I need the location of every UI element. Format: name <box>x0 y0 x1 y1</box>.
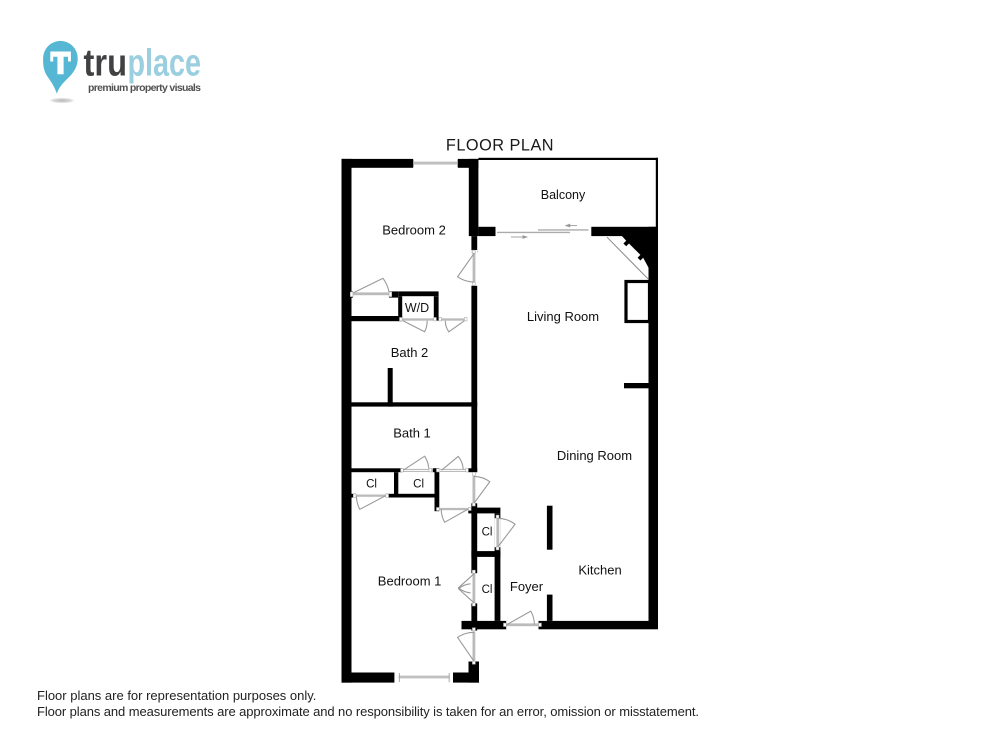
svg-text:Foyer: Foyer <box>510 579 544 594</box>
svg-text:Cl: Cl <box>482 527 493 539</box>
svg-text:Cl: Cl <box>366 478 377 490</box>
svg-text:Bath 1: Bath 1 <box>393 426 431 441</box>
svg-text:W/D: W/D <box>405 301 429 315</box>
svg-text:Bedroom 1: Bedroom 1 <box>378 574 442 589</box>
svg-text:Bedroom 2: Bedroom 2 <box>382 223 446 238</box>
svg-text:Floor plans and measurements a: Floor plans and measurements are approxi… <box>37 704 699 719</box>
svg-text:Balcony: Balcony <box>541 188 586 202</box>
svg-text:Dining Room: Dining Room <box>557 448 632 463</box>
svg-text:Bath 2: Bath 2 <box>391 345 429 360</box>
svg-text:truplace: truplace <box>84 43 202 85</box>
svg-text:Floor plans are for representa: Floor plans are for representation purpo… <box>37 688 316 703</box>
svg-text:Cl: Cl <box>482 584 493 596</box>
svg-text:FLOOR PLAN: FLOOR PLAN <box>446 136 554 154</box>
svg-text:Kitchen: Kitchen <box>578 563 621 578</box>
svg-text:Living Room: Living Room <box>527 309 599 324</box>
svg-text:premium property visuals: premium property visuals <box>88 82 201 94</box>
svg-text:Cl: Cl <box>413 479 424 491</box>
